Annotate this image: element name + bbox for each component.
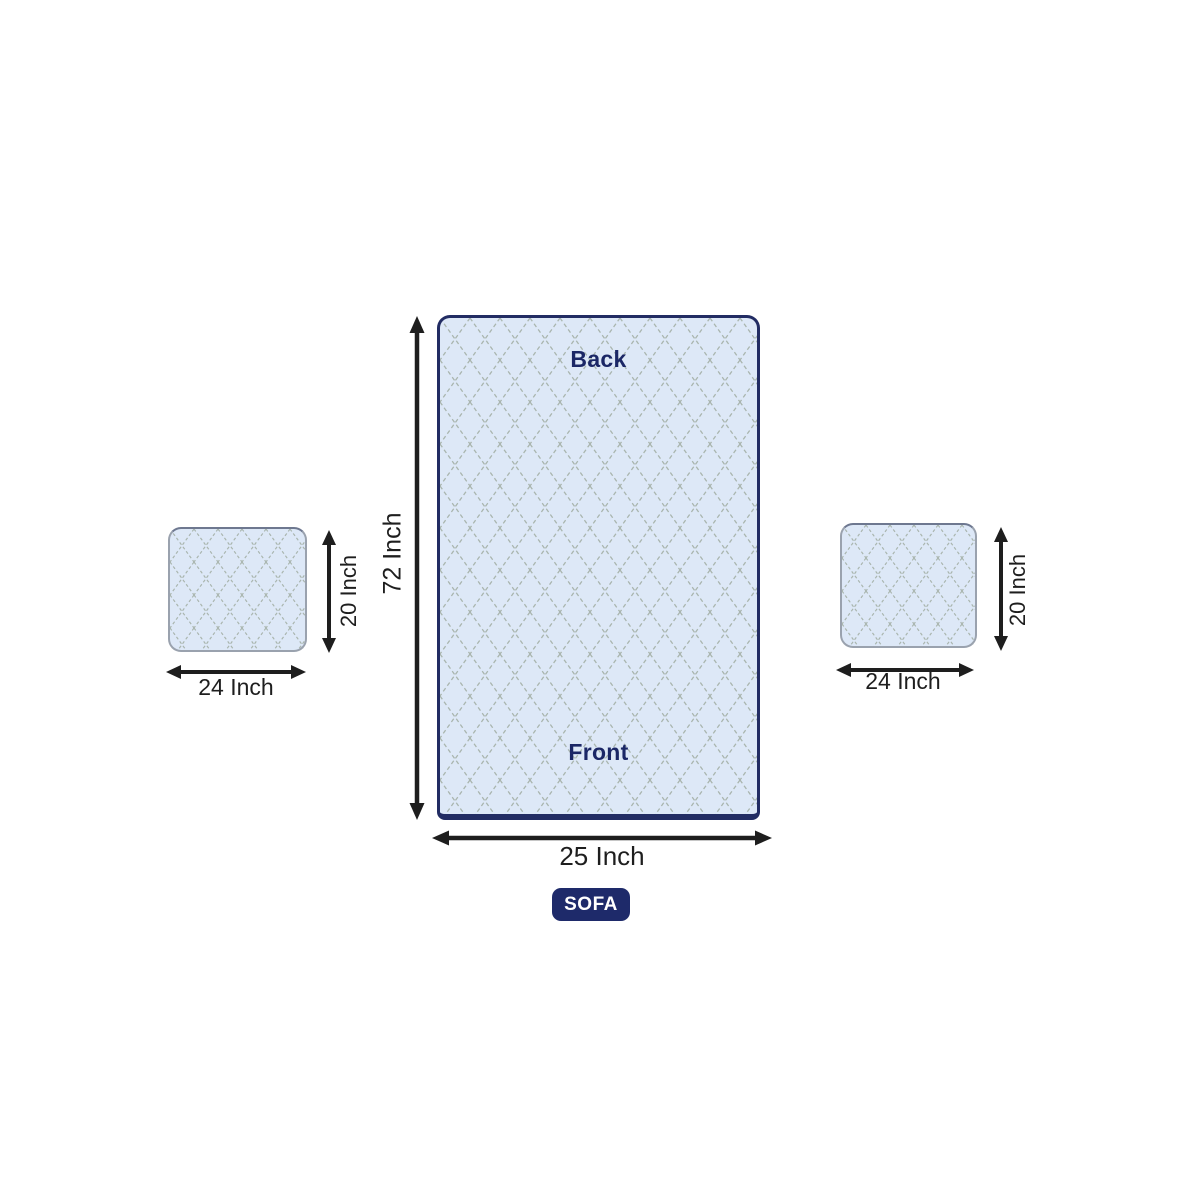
quilt-pattern bbox=[842, 525, 975, 646]
quilt-pattern bbox=[170, 529, 305, 650]
front-label: Front bbox=[440, 739, 757, 766]
main-panel: Back Front bbox=[437, 315, 760, 820]
right-cushion-height-label: 20 Inch bbox=[1005, 530, 1031, 650]
main-width-label: 25 Inch bbox=[502, 841, 702, 872]
main-height-arrow bbox=[406, 316, 428, 820]
back-label: Back bbox=[440, 346, 757, 373]
left-cushion-height-label: 20 Inch bbox=[336, 531, 362, 651]
left-cushion-width-label: 24 Inch bbox=[163, 674, 309, 701]
sofa-cover-dimension-diagram: Back Front 72 Inch 25 Inch 20 Inch bbox=[0, 0, 1200, 1200]
left-cushion-panel bbox=[168, 527, 307, 652]
right-cushion-width-label: 24 Inch bbox=[832, 668, 974, 695]
right-cushion-panel bbox=[840, 523, 977, 648]
main-height-label: 72 Inch bbox=[379, 484, 408, 624]
sofa-badge: SOFA bbox=[552, 888, 630, 921]
